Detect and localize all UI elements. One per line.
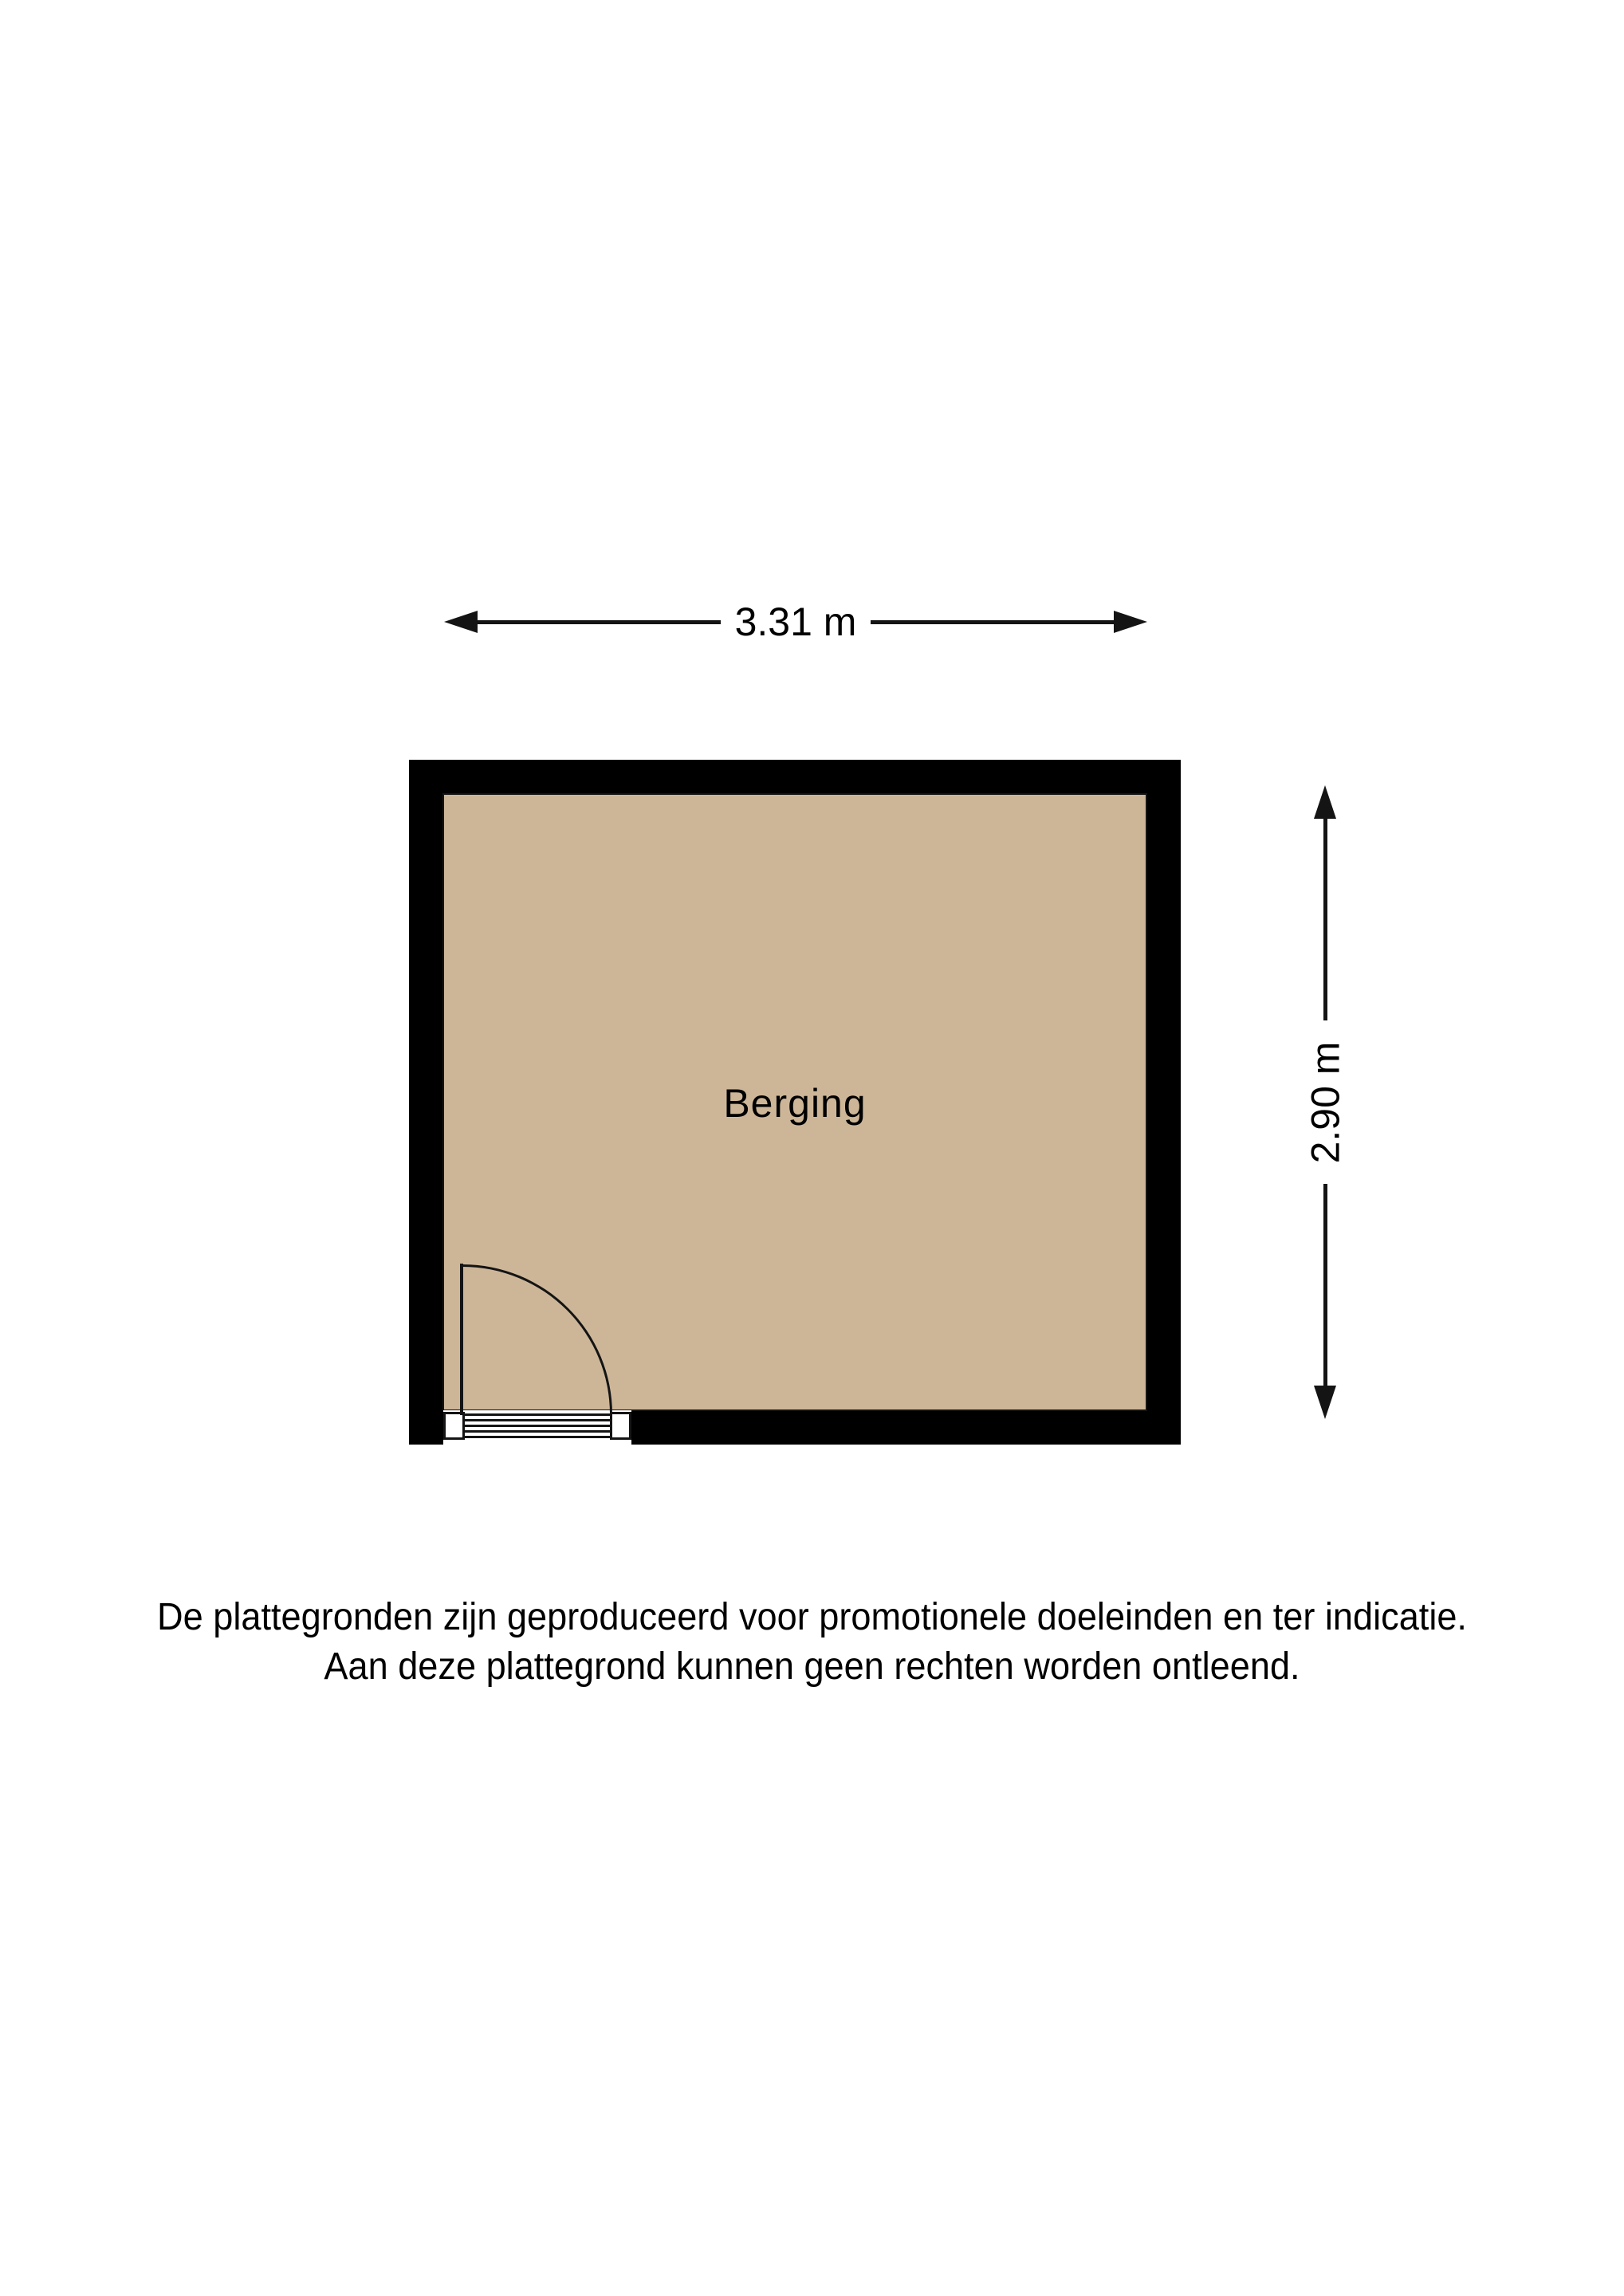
disclaimer-line-2: Aan deze plattegrond kunnen geen rechten… [49,1642,1575,1692]
threshold-line [445,1425,630,1427]
dimension-line [871,620,1114,624]
height-dimension-label: 2.90 m [1305,1041,1345,1163]
arrowhead-down-icon [1314,1386,1336,1419]
door-jamb-left [443,1412,465,1440]
dimension-line [1323,819,1327,1020]
arrowhead-left-icon [444,611,478,633]
width-dimension-label: 3.31 m [721,602,871,642]
arrowhead-right-icon [1114,611,1147,633]
threshold-line [445,1430,630,1433]
width-dimension: 3.31 m [444,594,1147,650]
floorplan-canvas: 3.31 m Berging 2.90 m De plattegronden z… [0,0,1624,2296]
arrowhead-up-icon [1314,785,1336,819]
disclaimer: De plattegronden zijn geproduceerd voor … [49,1593,1575,1692]
threshold-line [445,1419,630,1421]
dimension-line [478,620,721,624]
height-dimension-label-wrap: 2.90 m [1264,1020,1386,1184]
dimension-line [1323,1184,1327,1386]
door-jamb-right [610,1412,631,1440]
door-threshold [445,1413,630,1438]
room-label: Berging [444,1080,1146,1126]
disclaimer-line-1: De plattegronden zijn geproduceerd voor … [49,1593,1575,1642]
height-dimension: 2.90 m [1297,785,1353,1419]
